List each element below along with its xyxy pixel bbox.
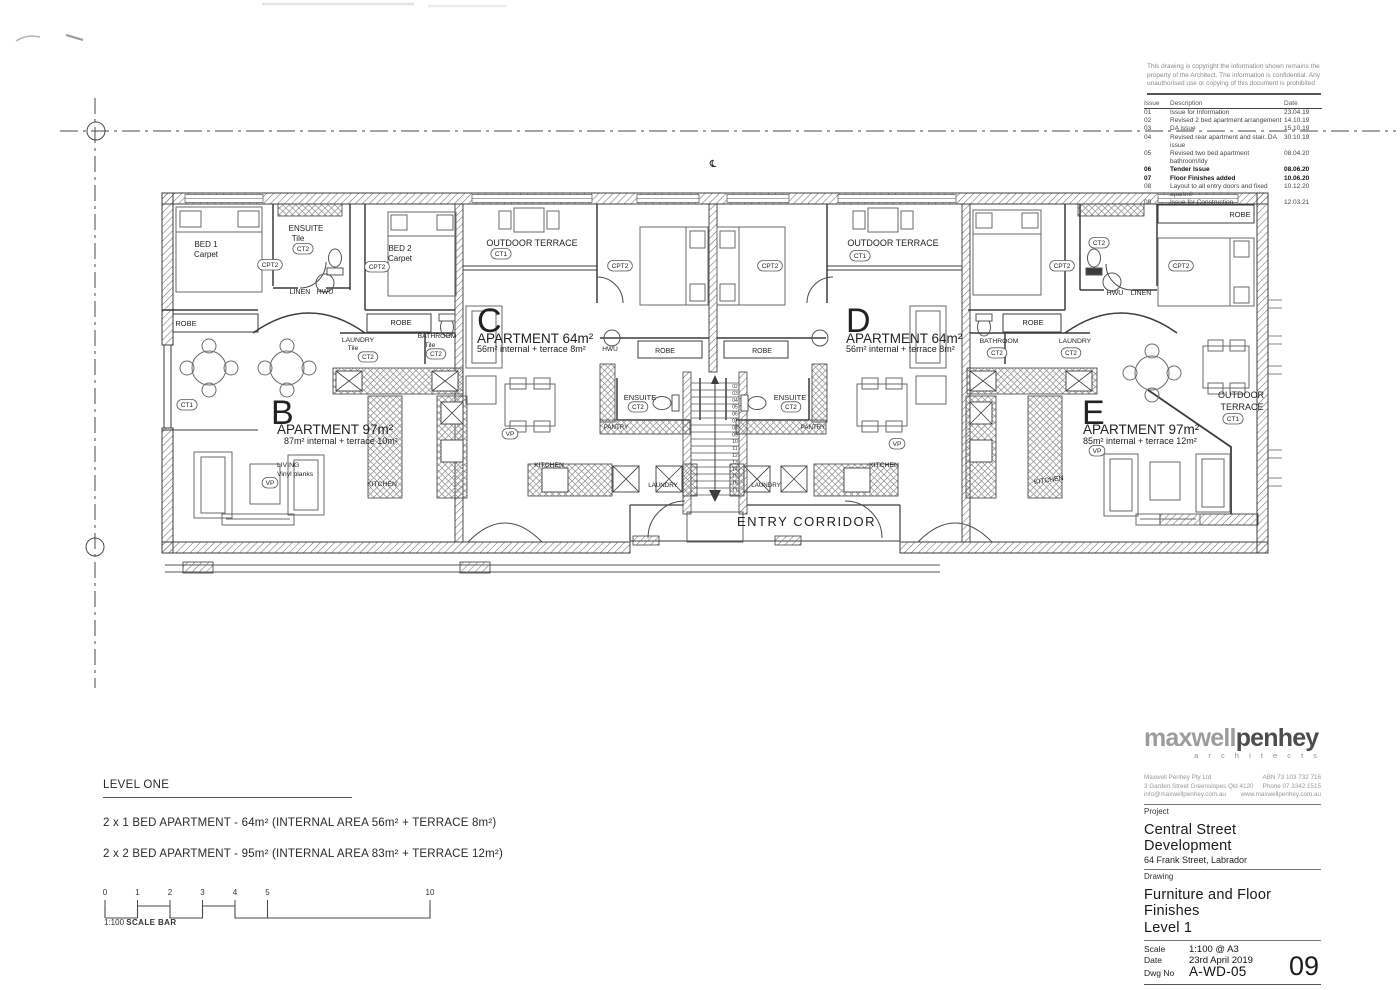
plan-label: LAUNDRY	[751, 482, 780, 489]
terrace-table	[499, 208, 559, 232]
finish-tag-label: VP	[506, 431, 515, 438]
finish-tag-label: CT1	[495, 251, 508, 258]
terrace-table	[1203, 340, 1249, 394]
drawing-section: Drawing Furniture and Floor Finishes Lev…	[1144, 870, 1321, 942]
revision-row: 06Tender Issue08.06.20	[1144, 166, 1322, 174]
dining-table	[857, 378, 907, 432]
plan-label: 85m² internal + terrace 12m²	[1083, 436, 1197, 446]
finish-tag-label: CPT2	[762, 263, 779, 270]
plan-label: ROBE	[175, 319, 196, 328]
bed	[176, 207, 262, 292]
revision-header: Issue Description Date	[1144, 100, 1322, 109]
finish-tag-label: CT2	[991, 350, 1003, 357]
plan-label: OUTDOOR TERRACE	[847, 238, 938, 248]
plan-label: PANTRY	[604, 424, 629, 431]
scale-ticks: 01234510	[103, 888, 435, 908]
drawing-title: Furniture and Floor Finishes Level 1	[1144, 887, 1321, 937]
copyright-note: This drawing is copyright the informatio…	[1147, 63, 1321, 95]
finish-tag-label: CPT2	[1054, 263, 1071, 270]
stair-number: 05	[732, 405, 738, 411]
copyright-line: property of the Architect. The informati…	[1147, 72, 1321, 81]
scale-tick-label: 5	[265, 888, 270, 897]
plan-label: ROBE	[1229, 210, 1250, 219]
bed	[1158, 238, 1254, 306]
finish-tag-label: CT2	[297, 246, 310, 253]
scale-tick-label: 10	[426, 888, 435, 897]
finish-tag-label: CT2	[1065, 350, 1077, 357]
terrace-table	[853, 208, 913, 232]
plan-label: ENSUITE	[289, 224, 324, 233]
stair-number: 06	[732, 412, 738, 418]
finish-tag-label: CT2	[362, 354, 374, 361]
plan-label: Tile	[292, 234, 305, 243]
plan-label: ENSUITE	[774, 393, 807, 402]
plan-label: BED 1	[194, 240, 218, 249]
plan-label: TERRACE	[1220, 402, 1263, 412]
project-address: 64 Frank Street, Labrador	[1144, 855, 1321, 865]
plan-label: APARTMENT 97m²	[1083, 422, 1200, 437]
legend-rule	[103, 797, 352, 798]
plan-label: PANTRY	[801, 424, 826, 431]
plan-label: ROBE	[752, 348, 772, 355]
sofa-group	[910, 306, 946, 404]
revision-row: 05Revised two bed apartment bathroom/ldy…	[1144, 150, 1322, 166]
project-name: Central Street Development	[1144, 822, 1321, 854]
plan-label: ROBE	[1022, 318, 1043, 327]
finish-tag-label: VP	[1093, 448, 1102, 455]
stair-number: 08	[732, 425, 738, 431]
stair-number: 12	[732, 453, 738, 459]
drawing-sheet: 02030405060708091011121314151617	[0, 0, 1400, 990]
plan-label: Vinyl planks	[277, 471, 314, 478]
project-section: Project Central Street Development 64 Fr…	[1144, 805, 1321, 870]
plan-label: BATHROOM	[980, 338, 1019, 345]
revision-row: 09Issue for Construction12.03.21	[1144, 199, 1322, 207]
stair-number: 07	[732, 419, 738, 425]
dwg-number: A-WD-05	[1189, 966, 1247, 977]
plan-label: 87m² internal + terrace 10m²	[284, 436, 398, 446]
plan-label: APARTMENT 97m²	[277, 422, 394, 437]
finish-tag-label: CT2	[785, 404, 797, 411]
finish-tag-label: VP	[266, 480, 275, 487]
finish-tag-label: CT1	[181, 402, 194, 409]
plan-label: KITCHEN	[869, 462, 899, 469]
legend-line: 2 x 2 BED APARTMENT - 95m² (INTERNAL ARE…	[103, 848, 583, 860]
revision-row: 08Layout to all entry doors and fixed ap…	[1144, 183, 1322, 199]
bed	[640, 227, 708, 305]
scale-bar-label: 1:100 SCALE BAR	[104, 918, 177, 927]
finish-tag-label: CT2	[632, 404, 644, 411]
finish-tag-label: CPT2	[262, 262, 279, 269]
revision-rows: 01Issue for Information23.04.1902Revised…	[1144, 109, 1322, 207]
stair-number: 17	[732, 488, 738, 494]
sofa-group	[194, 452, 324, 525]
plan-label: 56m² internal + terrace 8m²	[846, 344, 955, 354]
stair-numbers: 02030405060708091011121314151617	[732, 384, 738, 494]
stair-number: 14	[732, 467, 738, 473]
finish-tag-label: CT1	[1227, 416, 1240, 423]
finish-tag-label: CPT2	[1173, 263, 1190, 270]
plan-label: ENSUITE	[624, 393, 657, 402]
stair-number: 03	[732, 391, 738, 397]
round-table	[180, 339, 238, 397]
plan-label: ℄	[709, 159, 717, 170]
plan-label: Carpet	[194, 250, 219, 259]
scale-tick-label: 2	[168, 888, 173, 897]
finish-tag-label: CT2	[430, 351, 442, 358]
finish-tag-label: VP	[893, 441, 902, 448]
plan-label: BATHROOM	[418, 333, 457, 340]
scale-value: 1:100 @ A3	[1189, 944, 1239, 955]
finish-tag-label: CT1	[854, 253, 867, 260]
finish-tag-label: CT2	[1093, 240, 1106, 247]
stair-number: 09	[732, 432, 738, 438]
plan-label: LAUNDRY	[648, 482, 677, 489]
copyright-line: unauthorised use or copying of this docu…	[1147, 80, 1321, 89]
architect-logo: maxwellpenhey	[1144, 726, 1321, 750]
revision-row: 04Revised rear apartment and stair. DA i…	[1144, 134, 1322, 150]
dining-table	[505, 378, 555, 432]
plan-label: LAUNDRY	[342, 337, 375, 344]
exterior-walls	[162, 193, 1282, 553]
stair-number: 11	[732, 446, 737, 452]
scale-tick-label: 3	[200, 888, 205, 897]
plan-label: ROBE	[655, 348, 675, 355]
pencil-marks	[16, 4, 506, 41]
plan-label: BED 2	[388, 244, 412, 253]
plan-label: Tile	[348, 345, 359, 352]
plan-label: ROBE	[390, 318, 411, 327]
plan-label: HWU	[602, 346, 618, 353]
legend-title: LEVEL ONE	[103, 779, 583, 791]
revision-row: 03DA issue15.10.19	[1144, 125, 1322, 133]
stair-number: 10	[732, 439, 738, 445]
architect-contact: Maxwell Penhey Pty Ltd ABN 73 103 732 71…	[1144, 774, 1321, 805]
plan-label: HWU	[1107, 290, 1124, 297]
plan-label: LIVING	[277, 462, 299, 469]
revision-row: 02Revised 2 bed apartment arrangement14.…	[1144, 117, 1322, 125]
revision-table: Issue Description Date 01Issue for Infor…	[1144, 100, 1322, 207]
plan-label: KITCHEN	[367, 481, 397, 488]
stair-number: 04	[732, 398, 738, 404]
stair-number: 15	[732, 474, 738, 480]
bed	[973, 210, 1041, 295]
plan-label: LINEN	[290, 289, 311, 296]
round-table	[258, 339, 316, 397]
stair-number: 02	[732, 384, 738, 390]
plan-label: ENTRY CORRIDOR	[737, 514, 876, 529]
plan-label: Tile	[425, 342, 436, 349]
plan-label: LINEN	[1131, 290, 1152, 297]
scale-tick-label: 0	[103, 888, 108, 897]
plan-label: Carpet	[388, 254, 413, 263]
revision-row: 07Floor Finishes added10.06.20	[1144, 175, 1322, 183]
scale-tick-label: 4	[233, 888, 238, 897]
finish-tag-label: CPT2	[369, 264, 386, 271]
stair-number: 13	[732, 460, 738, 466]
revision-row: 01Issue for Information23.04.19	[1144, 109, 1322, 117]
plan-label: OUTDOOR TERRACE	[486, 238, 577, 248]
finish-tag-label: CPT2	[612, 263, 629, 270]
plan-label: OUTDOOR	[1218, 390, 1264, 400]
stair-number: 16	[732, 481, 738, 487]
architect-logo-sub: a r c h i t e c t s	[1144, 751, 1321, 760]
plan-label: KITCHEN	[534, 462, 564, 469]
copyright-line: This drawing is copyright the informatio…	[1147, 63, 1321, 72]
meta-section: Scale 1:100 @ A3 Date 23rd April 2019 Dw…	[1144, 941, 1321, 985]
title-block: maxwellpenhey a r c h i t e c t s Maxwel…	[1144, 726, 1321, 985]
plan-label: LAUNDRY	[1059, 338, 1092, 345]
legend: LEVEL ONE 2 x 1 BED APARTMENT - 64m² (IN…	[103, 779, 583, 860]
plan-label: HWU	[317, 289, 334, 296]
plan-label: 56m² internal + terrace 8m²	[477, 344, 586, 354]
legend-line: 2 x 1 BED APARTMENT - 64m² (INTERNAL ARE…	[103, 817, 583, 829]
scale-tick-label: 1	[135, 888, 140, 897]
issue-number: 09	[1289, 951, 1319, 982]
